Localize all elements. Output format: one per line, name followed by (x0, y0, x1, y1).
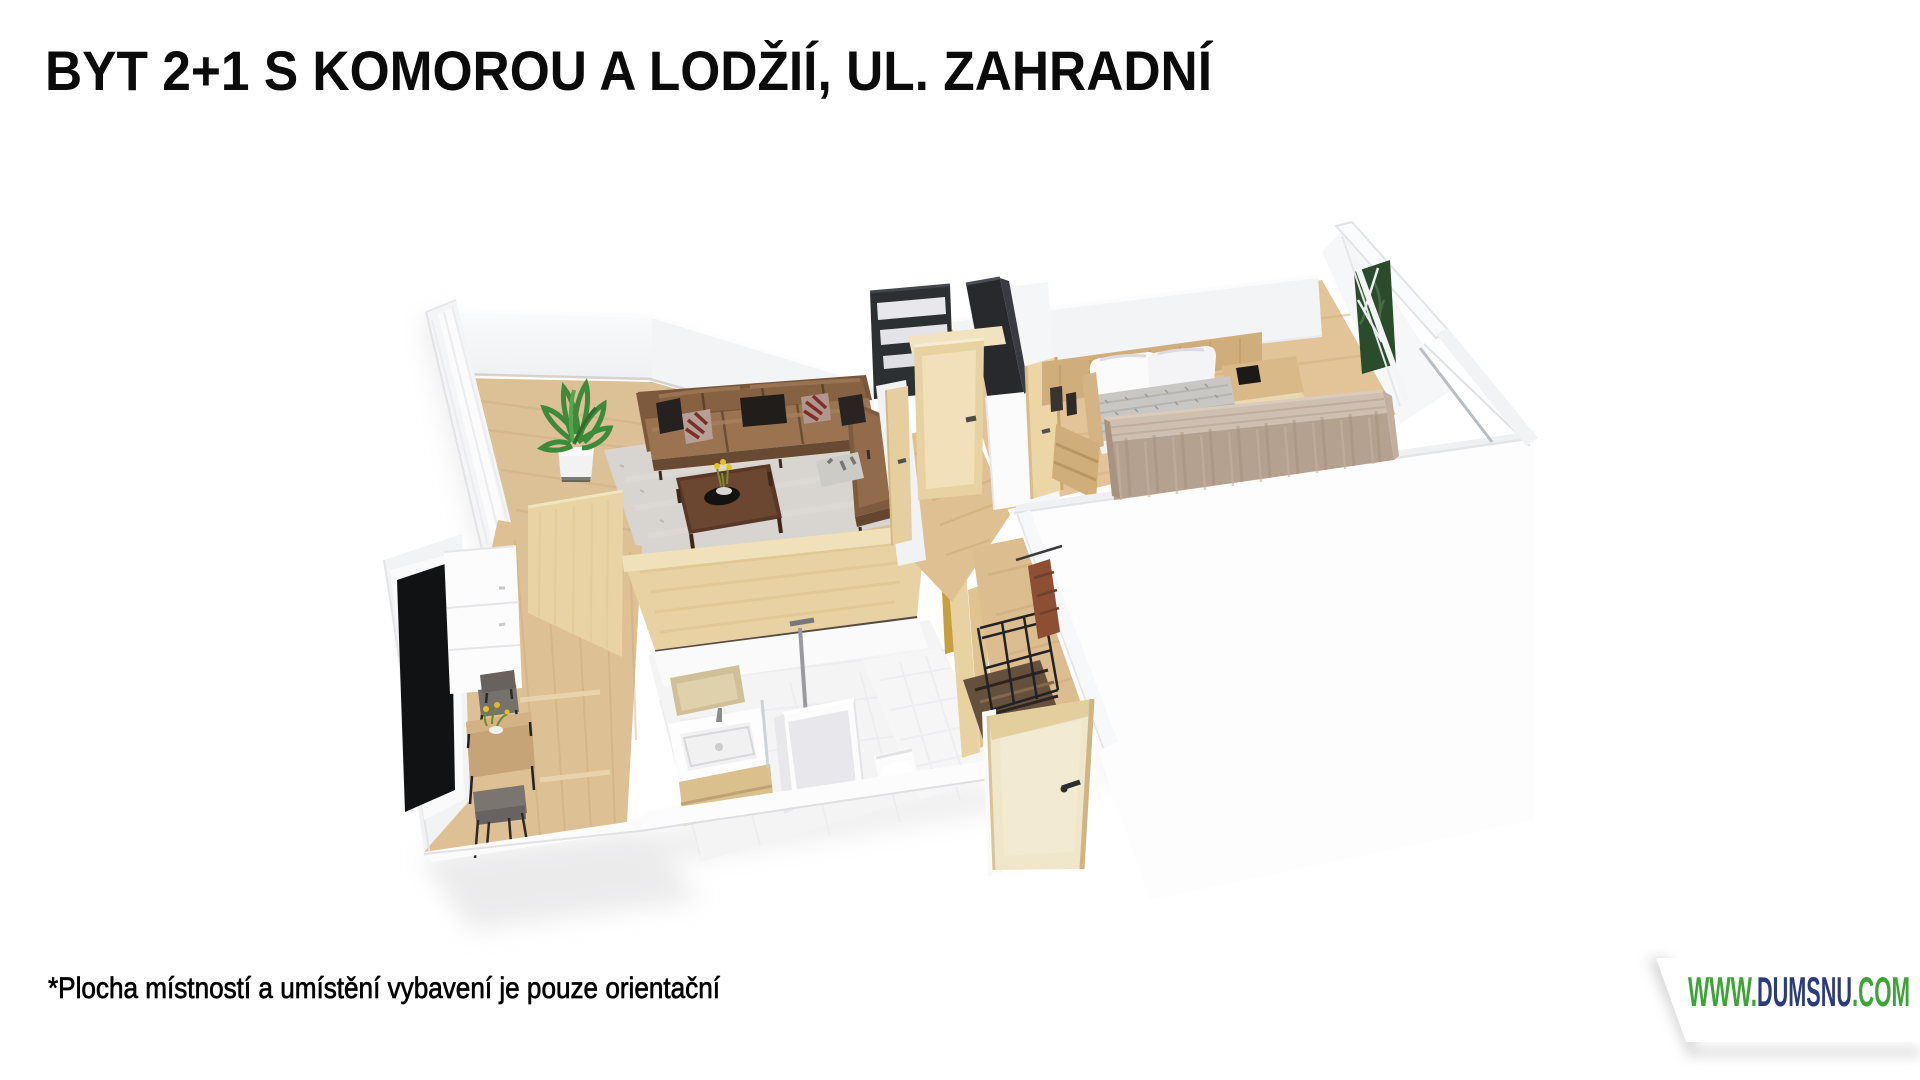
svg-text:*Plocha místností a umístění v: *Plocha místností a umístění vybavení je… (48, 972, 721, 1005)
svg-text:DUMSNU: DUMSNU (1757, 968, 1852, 1015)
svg-text:BYT 2+1 S KOMOROU A LODŽIÍ, UL: BYT 2+1 S KOMOROU A LODŽIÍ, UL. ZAHRADNÍ (45, 39, 1213, 102)
svg-text:WWW.: WWW. (1688, 968, 1757, 1015)
svg-text:.COM: .COM (1852, 968, 1910, 1015)
